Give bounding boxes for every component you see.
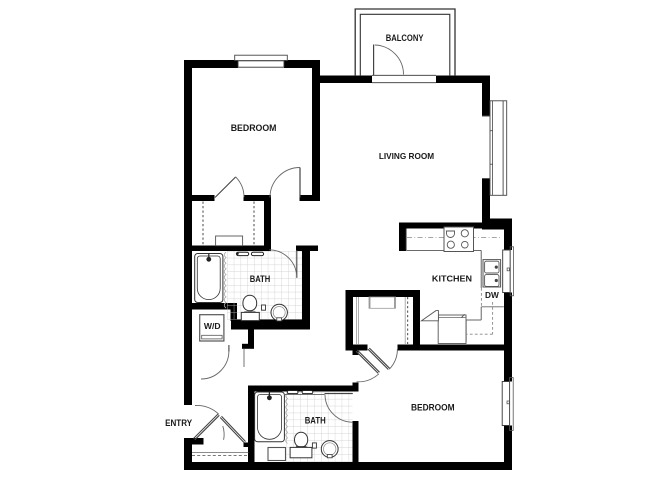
svg-text:BALCONY: BALCONY [386,33,424,43]
svg-text:W/D: W/D [204,322,221,331]
svg-text:BEDROOM: BEDROOM [411,402,455,412]
svg-text:KITCHEN: KITCHEN [432,273,472,283]
svg-text:BEDROOM: BEDROOM [231,123,277,133]
svg-text:BATH: BATH [305,415,326,425]
svg-text:BATH: BATH [250,274,271,284]
svg-text:ENTRY: ENTRY [165,418,192,428]
svg-text:DW: DW [485,291,499,300]
svg-text:LIVING ROOM: LIVING ROOM [379,151,434,161]
